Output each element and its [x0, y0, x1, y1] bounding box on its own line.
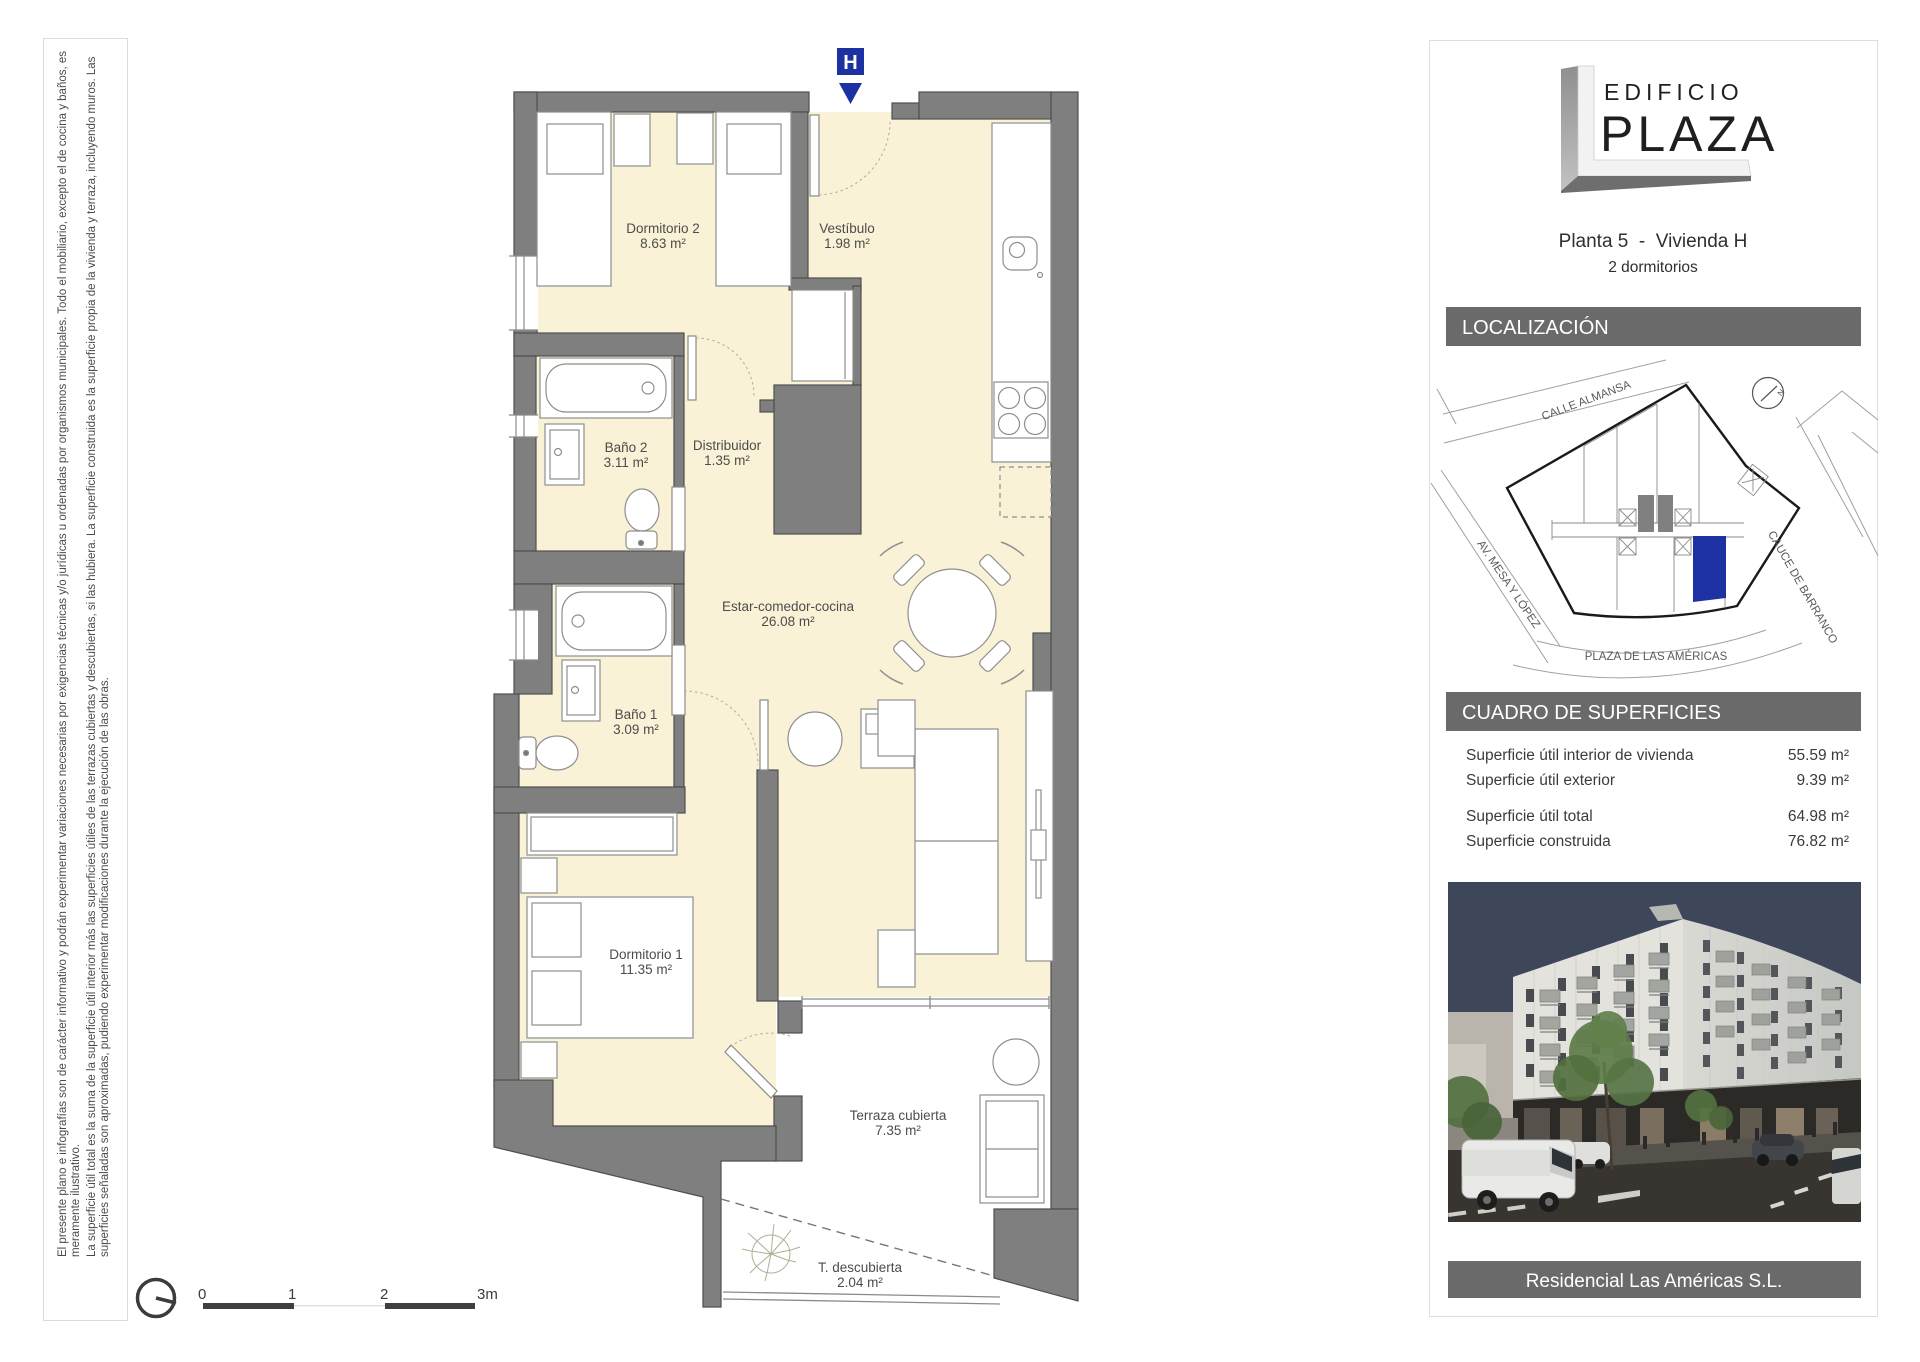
svg-text:Terraza cubierta: Terraza cubierta: [850, 1108, 947, 1123]
svg-text:9.39 m²: 9.39 m²: [1796, 772, 1849, 789]
svg-text:CUADRO DE SUPERFICIES: CUADRO DE SUPERFICIES: [1462, 702, 1721, 724]
svg-text:La superficie útil total es la: La superficie útil total es la suma de l…: [86, 56, 98, 1257]
svg-text:76.82 m²: 76.82 m²: [1788, 833, 1849, 850]
svg-text:Superficie útil interior de vi: Superficie útil interior de vivienda: [1466, 747, 1694, 764]
svg-text:Baño 2: Baño 2: [605, 440, 648, 455]
svg-text:Planta 5 - Vivienda H: Planta 5 - Vivienda H: [1559, 231, 1748, 252]
svg-text:2 dormitorios: 2 dormitorios: [1608, 259, 1698, 276]
svg-text:Superficie útil exterior: Superficie útil exterior: [1466, 772, 1615, 789]
svg-text:8.63 m²: 8.63 m²: [640, 236, 686, 251]
svg-text:3m: 3m: [477, 1286, 498, 1303]
svg-text:2: 2: [380, 1286, 388, 1303]
svg-text:meramente ilustrativo.: meramente ilustrativo.: [70, 1144, 82, 1257]
svg-text:EDIFICIO: EDIFICIO: [1604, 79, 1744, 105]
svg-text:superficies señaladas son apro: superficies señaladas son aproximadas, p…: [99, 677, 111, 1257]
svg-text:55.59 m²: 55.59 m²: [1788, 747, 1849, 764]
svg-text:1.35 m²: 1.35 m²: [704, 453, 750, 468]
svg-text:PLAZA: PLAZA: [1600, 106, 1778, 162]
svg-text:LOCALIZACIÓN: LOCALIZACIÓN: [1462, 316, 1609, 339]
svg-text:El presente plano e infografía: El presente plano e infografías son de c…: [57, 51, 69, 1257]
svg-text:Dormitorio 2: Dormitorio 2: [626, 221, 700, 236]
svg-text:64.98 m²: 64.98 m²: [1788, 808, 1849, 825]
svg-text:0: 0: [198, 1286, 206, 1303]
svg-text:1: 1: [288, 1286, 296, 1303]
svg-text:3.09 m²: 3.09 m²: [613, 722, 659, 737]
svg-text:Residencial Las Américas S.L.: Residencial Las Américas S.L.: [1526, 1271, 1783, 1292]
svg-text:Estar-comedor-cocina: Estar-comedor-cocina: [722, 599, 855, 614]
svg-text:1.98 m²: 1.98 m²: [824, 236, 870, 251]
svg-text:11.35 m²: 11.35 m²: [620, 962, 673, 977]
svg-text:Superficie construida: Superficie construida: [1466, 833, 1611, 850]
svg-text:Superficie útil total: Superficie útil total: [1466, 808, 1593, 825]
svg-text:Vestíbulo: Vestíbulo: [819, 221, 875, 236]
svg-text:T. descubierta: T. descubierta: [818, 1260, 903, 1275]
svg-text:H: H: [843, 52, 857, 74]
svg-text:26.08 m²: 26.08 m²: [761, 614, 815, 629]
svg-text:2.04 m²: 2.04 m²: [837, 1275, 883, 1290]
svg-text:Dormitorio 1: Dormitorio 1: [609, 947, 683, 962]
svg-text:PLAZA DE LAS AMÉRICAS: PLAZA DE LAS AMÉRICAS: [1585, 650, 1728, 663]
svg-text:3.11 m²: 3.11 m²: [604, 455, 649, 470]
svg-text:7.35 m²: 7.35 m²: [875, 1123, 921, 1138]
svg-text:Distribuidor: Distribuidor: [693, 438, 762, 453]
svg-text:Baño 1: Baño 1: [615, 707, 658, 722]
